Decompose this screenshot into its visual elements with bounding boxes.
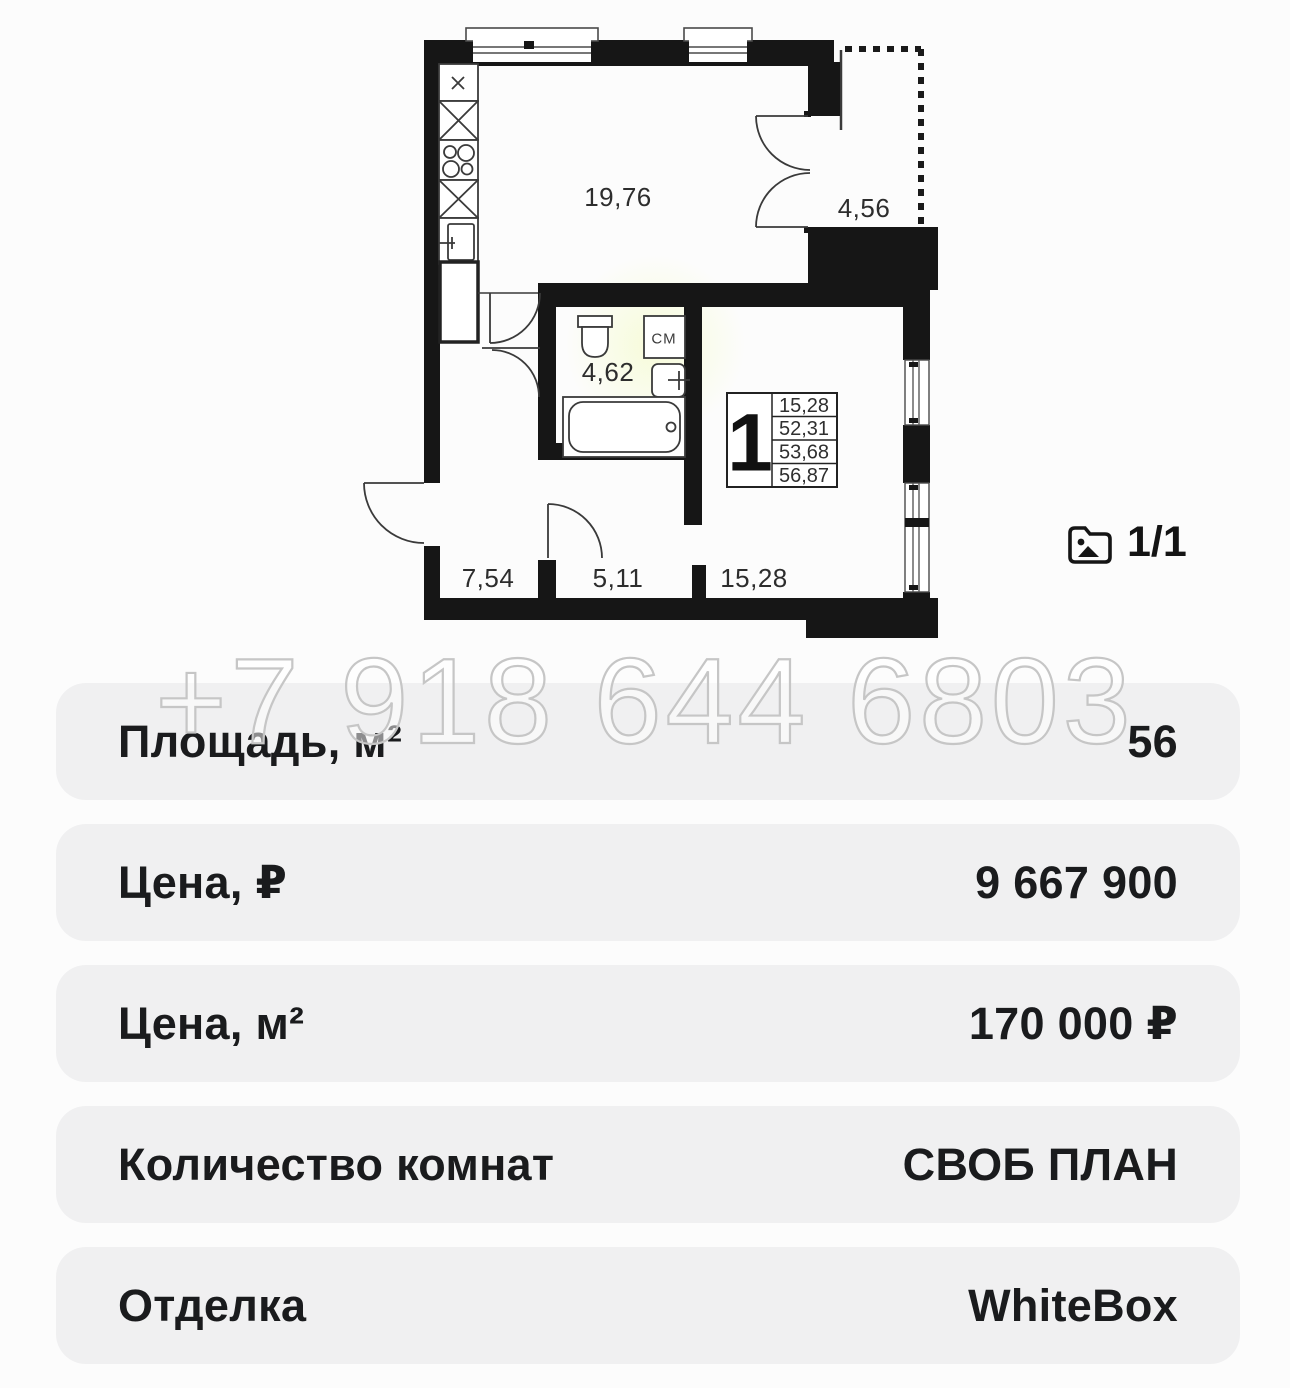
detail-label: Цена, м²: [118, 998, 304, 1050]
detail-label: Количество комнат: [118, 1139, 554, 1191]
detail-label: Площадь, м²: [118, 716, 402, 768]
sink-icon: [652, 364, 690, 397]
corridor-door-arc: [548, 504, 602, 558]
balcony-door-bottom-arc: [756, 173, 810, 227]
washing-machine-label: СМ: [651, 331, 676, 348]
photo-counter-text: 1/1: [1127, 518, 1187, 567]
kitchen-washbasin-icon: [439, 218, 478, 264]
room-label-hallway: 7,54: [462, 563, 515, 593]
legend-rooms-count: 1: [727, 398, 773, 489]
legend-area-0: 15,28: [779, 395, 829, 417]
detail-value: 9 667 900: [975, 857, 1178, 909]
kitchen-units: [439, 64, 478, 264]
detail-row-area: Площадь, м² 56: [56, 683, 1240, 800]
detail-label: Отделка: [118, 1280, 306, 1332]
detail-value: 170 000 ₽: [969, 997, 1178, 1050]
detail-label: Цена, ₽: [118, 856, 287, 909]
living-hall-door-arc: [490, 293, 540, 343]
legend-table: 1 15,28 52,31 53,68 56,87: [727, 393, 837, 489]
detail-row-finish: Отделка WhiteBox: [56, 1247, 1240, 1364]
niche-box: [440, 262, 478, 342]
photo-counter[interactable]: 1/1: [1066, 518, 1187, 567]
detail-row-price-per-m2: Цена, м² 170 000 ₽: [56, 965, 1240, 1082]
hallway-door-arc: [482, 348, 540, 397]
toilet-icon: [578, 316, 612, 357]
legend-area-2: 53,68: [779, 442, 829, 464]
detail-row-price: Цена, ₽ 9 667 900: [56, 824, 1240, 941]
photo-icon: [1066, 521, 1114, 565]
room-label-room: 15,28: [720, 563, 788, 593]
legend-area-3: 56,87: [779, 465, 829, 487]
detail-value: 56: [1127, 716, 1178, 768]
balcony-door-top-arc: [756, 116, 810, 170]
room-label-corridor: 5,11: [593, 563, 644, 593]
entrance-door-arc: [364, 483, 424, 543]
room-label-bathroom: 4,62: [582, 357, 635, 387]
room-label-kitchen-living: 19,76: [584, 182, 652, 212]
details-list: Площадь, м² 56 Цена, ₽ 9 667 900 Цена, м…: [56, 683, 1240, 1388]
legend-area-1: 52,31: [779, 418, 829, 440]
room-label-balcony: 4,56: [838, 193, 891, 223]
detail-value: СВОБ ПЛАН: [903, 1139, 1178, 1191]
stove-icon: [439, 140, 478, 180]
detail-row-rooms: Количество комнат СВОБ ПЛАН: [56, 1106, 1240, 1223]
detail-value: WhiteBox: [968, 1280, 1178, 1332]
bathtub-icon: [563, 397, 685, 457]
